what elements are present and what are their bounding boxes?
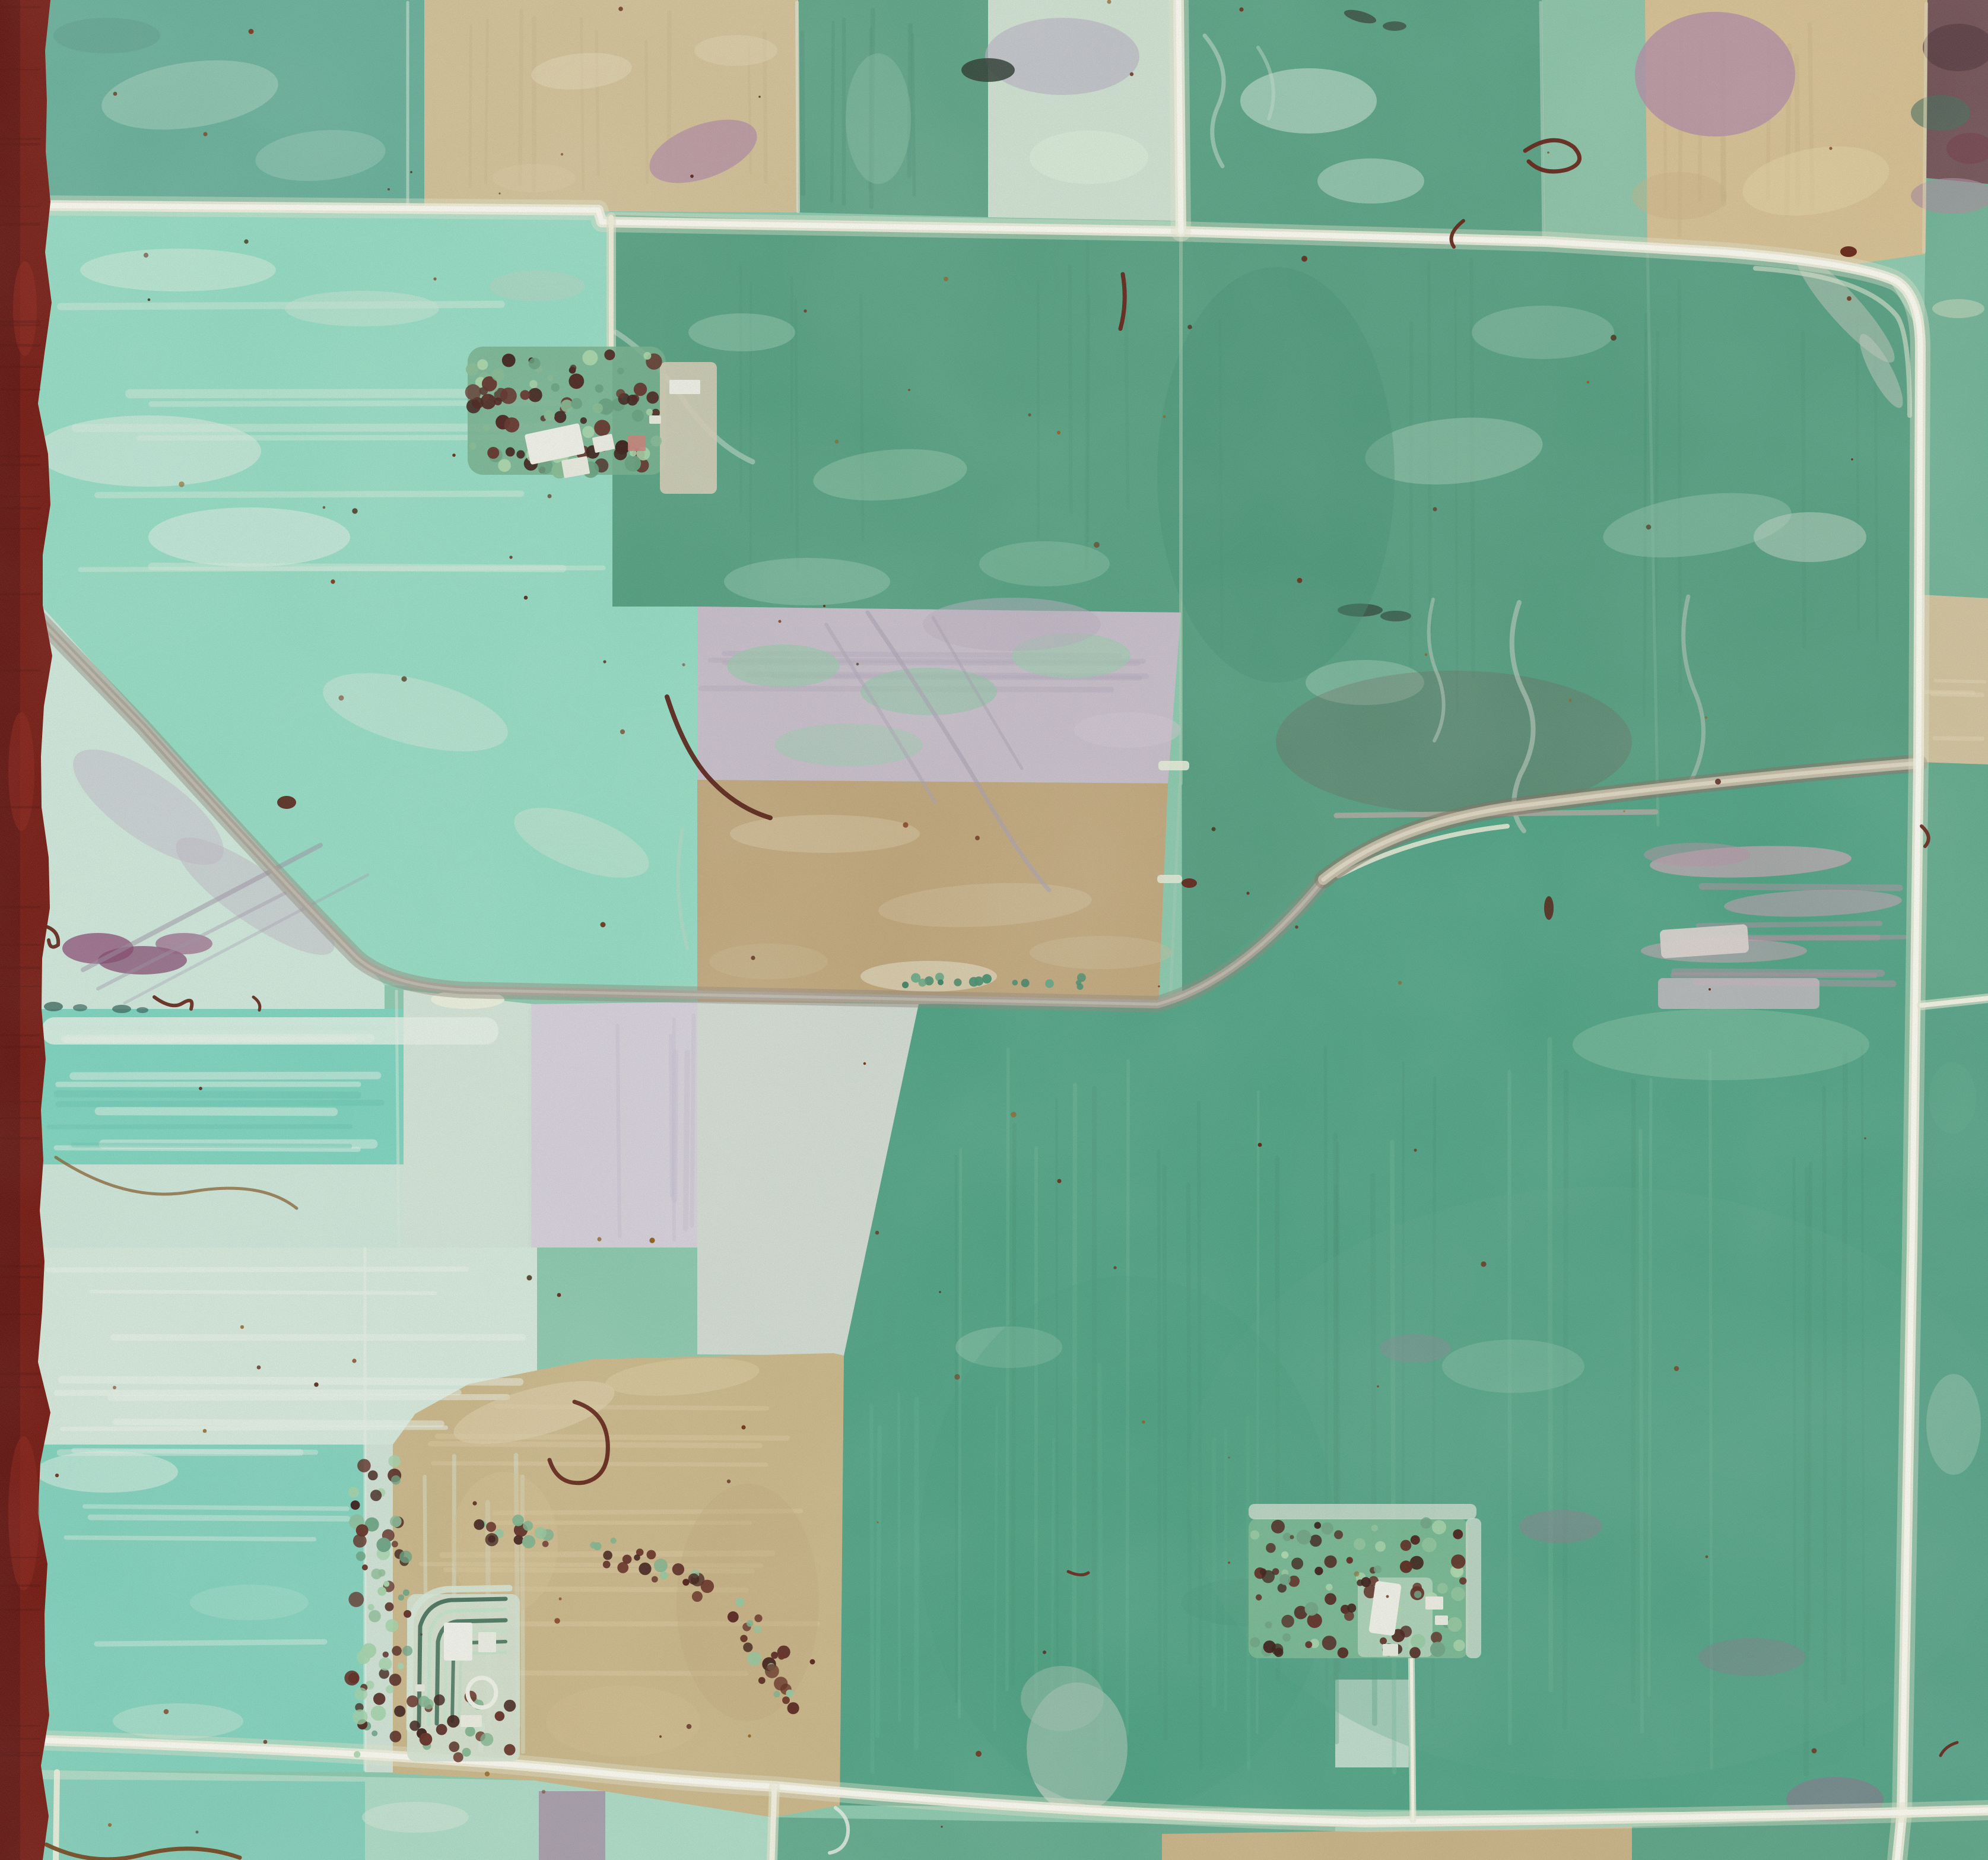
film-grain-light — [0, 0, 1988, 1860]
aerial-photo-canvas — [0, 0, 1988, 1860]
aerial-photo-frame — [0, 0, 1988, 1860]
